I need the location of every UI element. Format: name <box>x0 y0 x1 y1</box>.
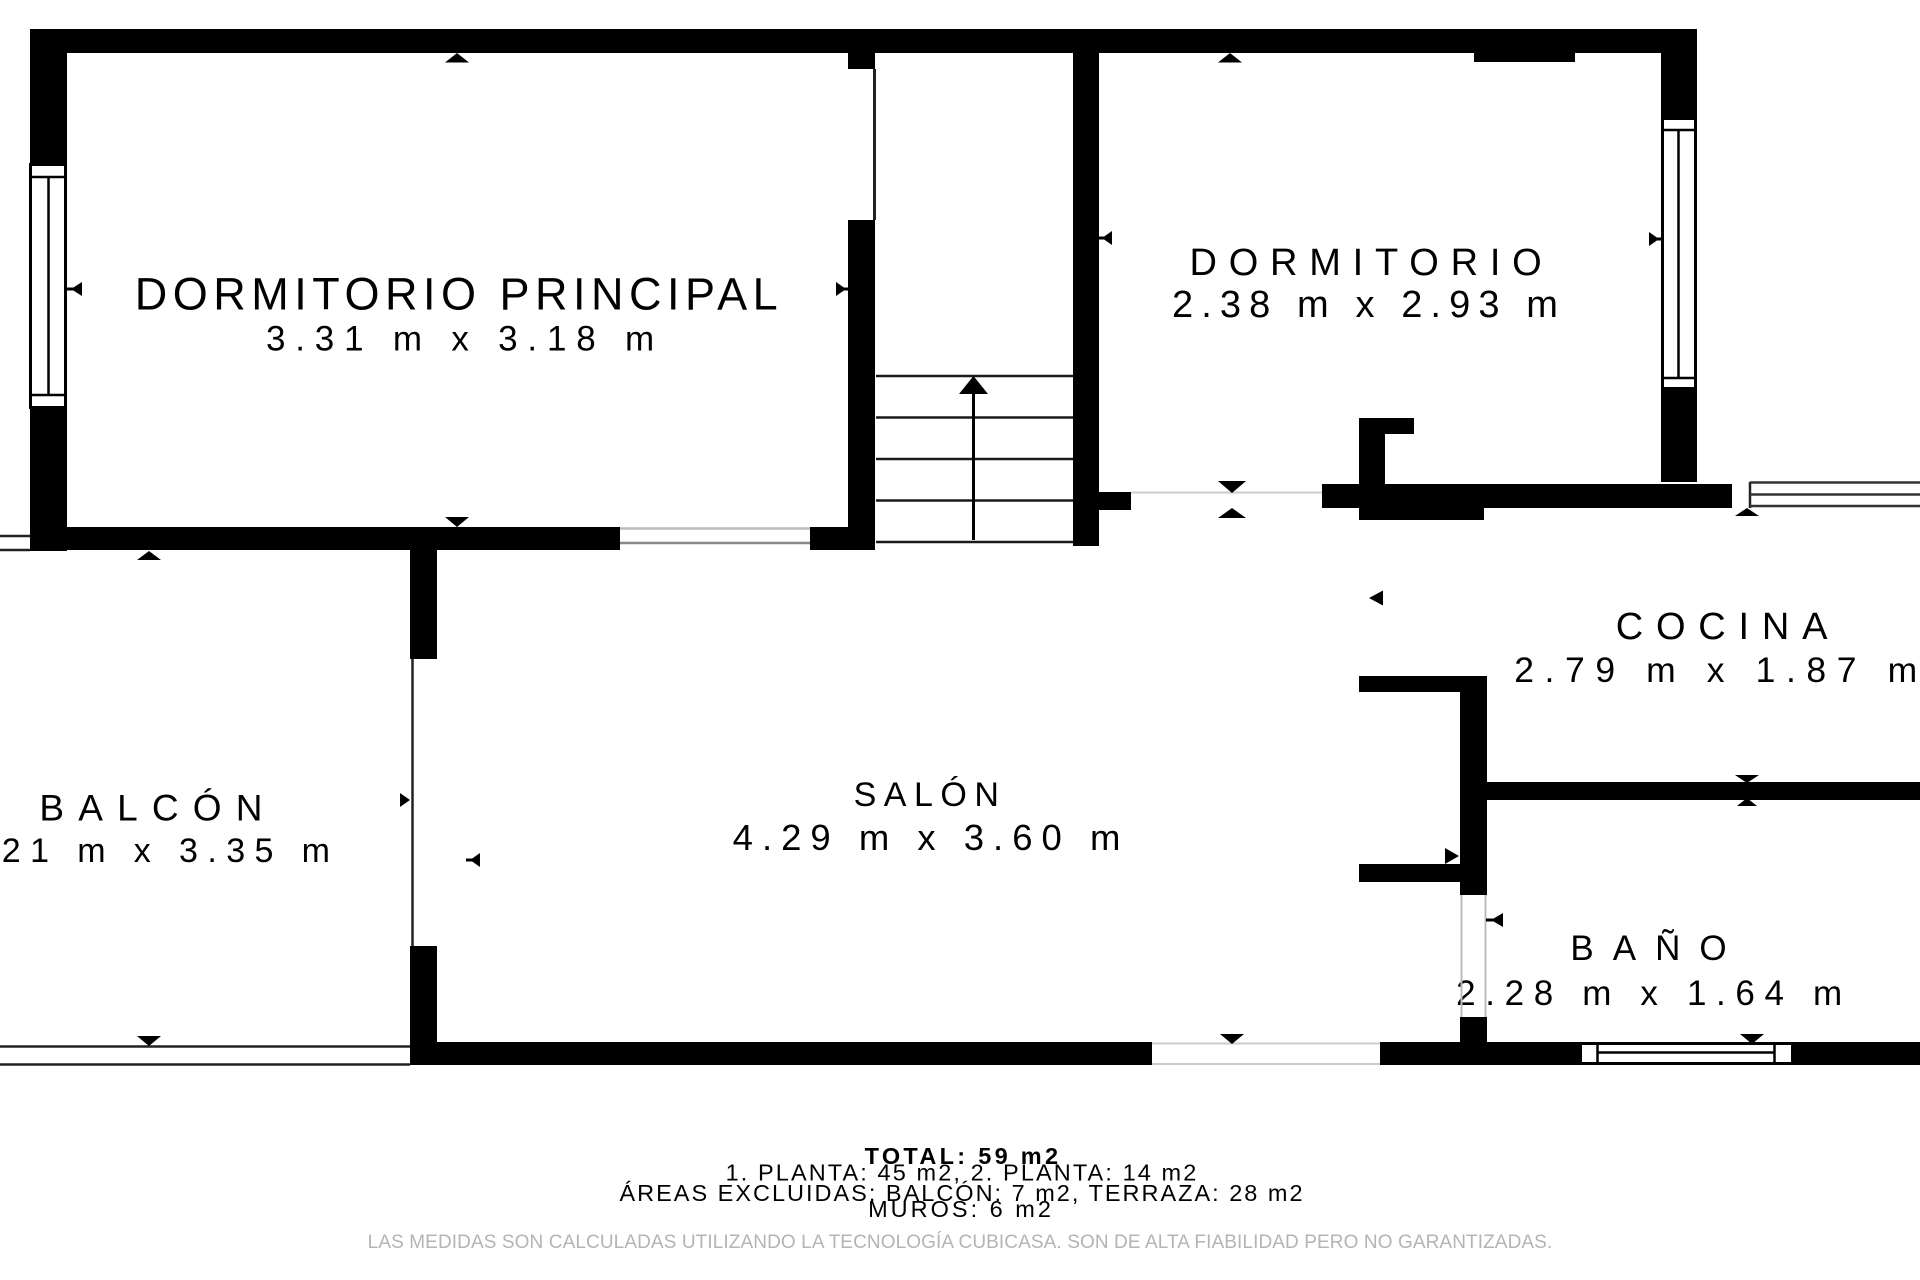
svg-text:3.21 m x 3.35 m: 3.21 m x 3.35 m <box>0 832 339 870</box>
svg-text:MUROS: 6 m2: MUROS: 6 m2 <box>868 1196 1054 1222</box>
svg-text:DORMITORIO: DORMITORIO <box>1190 242 1554 284</box>
svg-text:3.31 m x 3.18 m: 3.31 m x 3.18 m <box>266 320 664 359</box>
svg-text:BALCÓN: BALCÓN <box>39 788 276 829</box>
svg-text:SALÓN: SALÓN <box>854 776 1007 814</box>
svg-text:2.38 m x 2.93 m: 2.38 m x 2.93 m <box>1172 284 1566 326</box>
svg-text:BAÑO: BAÑO <box>1570 929 1745 968</box>
svg-text:COCINA: COCINA <box>1616 606 1841 648</box>
svg-text:4.29 m x 3.60 m: 4.29 m x 3.60 m <box>733 817 1130 858</box>
svg-text:DORMITORIO PRINCIPAL: DORMITORIO PRINCIPAL <box>135 269 783 320</box>
svg-text:2.28 m x 1.64 m: 2.28 m x 1.64 m <box>1456 974 1852 1013</box>
svg-text:LAS MEDIDAS SON CALCULADAS UTI: LAS MEDIDAS SON CALCULADAS UTILIZANDO LA… <box>368 1232 1553 1253</box>
svg-text:2.79 m x 1.87 m: 2.79 m x 1.87 m <box>1514 650 1920 690</box>
